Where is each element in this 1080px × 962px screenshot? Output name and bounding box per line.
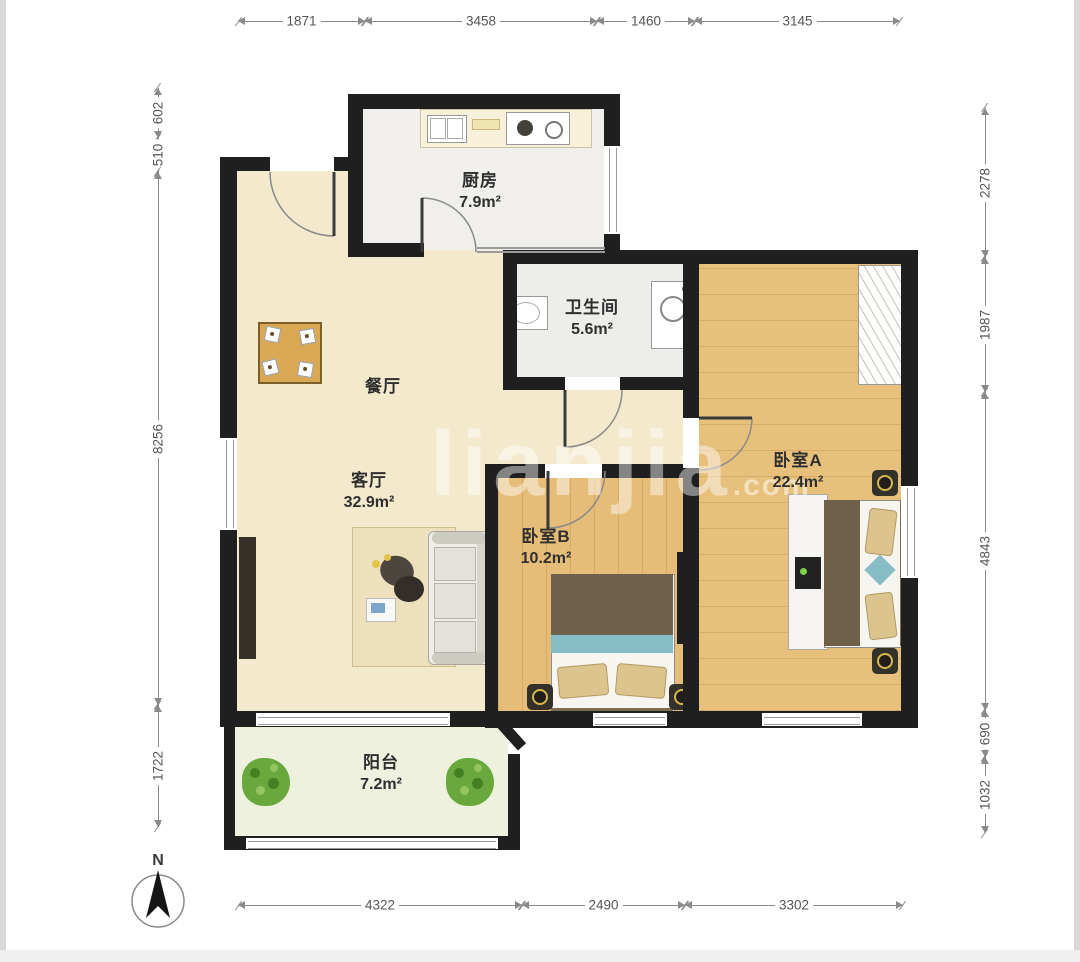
- dim-right-2: 1987: [976, 257, 994, 392]
- tv-cabinet: [239, 537, 256, 659]
- bedroom-a-east-window: [901, 486, 918, 578]
- bathroom-name: 卫生间: [565, 293, 619, 318]
- dim-bottom-3: 3302: [685, 896, 903, 914]
- living-name: 客厅: [344, 466, 395, 491]
- decor-dot: [384, 554, 391, 561]
- bedroom-b-name: 卧室B: [521, 522, 572, 547]
- balcony-name: 阳台: [360, 748, 402, 773]
- dining-name: 餐厅: [365, 372, 401, 397]
- dim-right-3: 4843: [976, 392, 994, 710]
- plant: [242, 758, 290, 806]
- dim-top-1: 1871: [238, 12, 365, 30]
- dining-label: 餐厅: [365, 372, 401, 397]
- dim-value: 3302: [775, 898, 813, 913]
- wardrobe: [858, 265, 904, 385]
- entry-door-arc: [266, 168, 340, 242]
- bedroom-a-door-arc: [697, 416, 755, 474]
- dim-left-3: 8256: [149, 172, 167, 705]
- wall-balcony-left: [224, 725, 235, 845]
- nightstand-lamp: [872, 648, 898, 674]
- bedroom-a-bed: [824, 500, 908, 648]
- dim-value: 1722: [151, 747, 166, 785]
- dim-right-1: 2278: [976, 108, 994, 257]
- dim-value: 4322: [361, 898, 399, 913]
- dim-right-4: 690: [976, 710, 994, 757]
- wall-bedroom-a-left-upper: [683, 250, 699, 418]
- dim-top-4: 3145: [695, 12, 900, 30]
- dim-value: 1987: [978, 305, 993, 343]
- kitchen-label: 厨房 7.9m²: [459, 166, 501, 212]
- kitchen-sliding-door: [477, 251, 605, 253]
- balcony-slider-window: [256, 713, 450, 726]
- dim-bottom-2: 2490: [522, 896, 685, 914]
- tv-icon: [795, 557, 821, 589]
- balcony-label: 阳台 7.2m²: [360, 748, 402, 794]
- living-label: 客厅 32.9m²: [344, 466, 395, 512]
- dim-value: 602: [151, 98, 166, 129]
- kitchen-area: 7.9m²: [459, 194, 501, 212]
- bedroom-a-name: 卧室A: [773, 446, 824, 471]
- screen-edge-left: [0, 0, 6, 962]
- kitchen-window: [604, 146, 620, 234]
- wall-kitchen-bottom: [348, 243, 424, 257]
- screen-edge-bottom: [0, 950, 1080, 962]
- dim-left-4: 1722: [149, 705, 167, 827]
- kitchen-stove: [506, 112, 570, 145]
- dim-value: 3145: [778, 14, 816, 29]
- nightstand-lamp: [527, 684, 553, 710]
- wall-bathroom-bottom-left: [503, 377, 565, 390]
- floorplan-image: 厨房 7.9m² 卫生间 5.6m² 餐厅 客厅 32.9m² 卧室B 10.2…: [0, 0, 1080, 962]
- bedroom-b-window: [593, 713, 667, 726]
- wall-balcony-right: [508, 754, 520, 846]
- balcony-glass: [246, 838, 498, 849]
- kitchen-sliding-door: [477, 247, 605, 249]
- cutting-board: [472, 119, 500, 130]
- kitchen-name: 厨房: [459, 166, 501, 191]
- wall-bathroom-bottom-right: [620, 377, 690, 390]
- dim-value: 4843: [978, 532, 993, 570]
- dim-left-2: 510: [149, 138, 167, 172]
- dim-value: 3458: [462, 14, 500, 29]
- balcony-area: 7.2m²: [360, 776, 402, 794]
- wall-kitchen-left: [348, 94, 363, 256]
- wall-bedroom-b-left: [485, 464, 498, 725]
- wall-bathroom-left: [503, 256, 517, 390]
- living-area: 32.9m²: [344, 494, 395, 512]
- dim-value: 2490: [584, 898, 622, 913]
- dim-value: 690: [978, 718, 993, 749]
- decor-dot: [372, 560, 380, 568]
- screen-edge-right: [1074, 0, 1080, 962]
- bedroom-a-south-window: [762, 713, 862, 726]
- sofa: [428, 531, 492, 665]
- coffee-table: [394, 576, 424, 602]
- bathroom-door-arc: [563, 388, 625, 450]
- bedroom-b-label: 卧室B 10.2m²: [521, 522, 572, 568]
- dim-top-3: 1460: [597, 12, 695, 30]
- dim-left-1: 602: [149, 88, 167, 138]
- plant: [446, 758, 494, 806]
- dim-right-5: 1032: [976, 757, 994, 833]
- north-arrow-icon: [123, 850, 193, 930]
- dining-table: [258, 322, 322, 384]
- dim-value: 1460: [627, 14, 665, 29]
- bedroom-b-area: 10.2m²: [521, 550, 572, 568]
- living-west-window: [220, 438, 237, 530]
- dim-top-2: 3458: [365, 12, 597, 30]
- kitchen-sink: [427, 115, 467, 143]
- bathroom-area: 5.6m²: [565, 321, 619, 339]
- dining-corridor-floor: [363, 250, 503, 390]
- bedroom-b-bed: [551, 574, 675, 714]
- wall-kitchen-top: [348, 94, 620, 109]
- dim-bottom-1: 4322: [238, 896, 522, 914]
- bedroom-a-label: 卧室A 22.4m²: [773, 446, 824, 492]
- dim-value: 2278: [978, 163, 993, 201]
- dim-value: 8256: [151, 419, 166, 457]
- bedroom-a-area: 22.4m²: [773, 474, 824, 492]
- wall-pier: [677, 552, 699, 644]
- bedroom-a-tv-stand: [788, 494, 828, 650]
- wall-bedroom-b-top-right: [602, 464, 683, 478]
- dim-value: 1032: [978, 776, 993, 814]
- nightstand-lamp: [872, 470, 898, 496]
- bathroom-label: 卫生间 5.6m²: [565, 293, 619, 339]
- dim-value: 510: [151, 140, 166, 171]
- magazine: [366, 598, 396, 622]
- dim-value: 1871: [282, 14, 320, 29]
